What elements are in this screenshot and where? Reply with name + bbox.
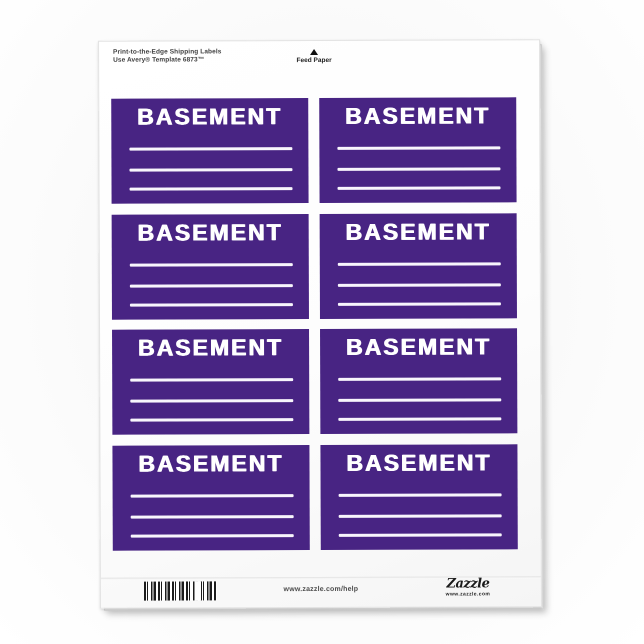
- shipping-label: BASEMENT: [320, 328, 517, 434]
- product-photo-stage: Print-to-the-Edge Shipping Labels Use Av…: [0, 0, 644, 644]
- write-line: [130, 284, 294, 288]
- write-line: [338, 302, 502, 306]
- shipping-label: BASEMENT: [320, 213, 517, 319]
- sheet-header-text: Print-to-the-Edge Shipping Labels Use Av…: [113, 48, 221, 64]
- sheet-title-line2: Use Avery® Template 6873™: [113, 56, 221, 64]
- feed-direction-arrow-icon: [310, 49, 318, 55]
- shipping-label: BASEMENT: [320, 444, 517, 550]
- label-sheet-stack: Print-to-the-Edge Shipping Labels Use Av…: [98, 39, 540, 607]
- label-title: BASEMENT: [320, 335, 517, 359]
- shipping-label: BASEMENT: [111, 98, 308, 204]
- write-line: [129, 168, 293, 172]
- write-line: [338, 262, 502, 266]
- write-line: [130, 399, 294, 403]
- write-line: [130, 534, 294, 538]
- label-sheet: Print-to-the-Edge Shipping Labels Use Av…: [98, 39, 542, 609]
- write-line: [338, 514, 502, 518]
- write-line: [338, 417, 502, 421]
- shipping-label: BASEMENT: [319, 97, 516, 203]
- label-title: BASEMENT: [112, 336, 309, 360]
- shipping-label: BASEMENT: [112, 445, 309, 551]
- write-line: [338, 398, 502, 402]
- feed-paper-indicator: Feed Paper: [282, 49, 346, 64]
- label-title: BASEMENT: [320, 220, 517, 244]
- write-line: [130, 378, 294, 382]
- label-title: BASEMENT: [112, 221, 309, 245]
- label-title: BASEMENT: [112, 452, 309, 476]
- label-title: BASEMENT: [319, 104, 516, 128]
- write-line: [129, 187, 293, 191]
- zazzle-logo: Zazzle www.zazzle.com: [435, 577, 501, 597]
- zazzle-wordmark: Zazzle: [435, 577, 501, 591]
- write-line: [129, 147, 293, 151]
- shipping-label: BASEMENT: [112, 214, 309, 320]
- write-line: [337, 186, 501, 190]
- write-line: [130, 418, 294, 422]
- write-line: [338, 533, 502, 537]
- write-line: [130, 494, 294, 498]
- zazzle-logo-tagline: www.zazzle.com: [435, 591, 501, 597]
- write-line: [130, 515, 294, 519]
- write-line: [338, 283, 502, 287]
- shipping-label: BASEMENT: [112, 329, 309, 435]
- write-line: [337, 146, 501, 150]
- label-title: BASEMENT: [111, 105, 308, 129]
- sheet-title-line1: Print-to-the-Edge Shipping Labels: [113, 48, 221, 56]
- write-line: [130, 263, 294, 267]
- write-line: [130, 303, 294, 307]
- labels-grid: BASEMENT BASEMENT BASEMENT: [111, 97, 518, 550]
- label-title: BASEMENT: [320, 451, 517, 475]
- write-line: [338, 377, 502, 381]
- feed-paper-label: Feed Paper: [297, 57, 332, 64]
- write-line: [338, 493, 502, 497]
- write-line: [337, 167, 501, 171]
